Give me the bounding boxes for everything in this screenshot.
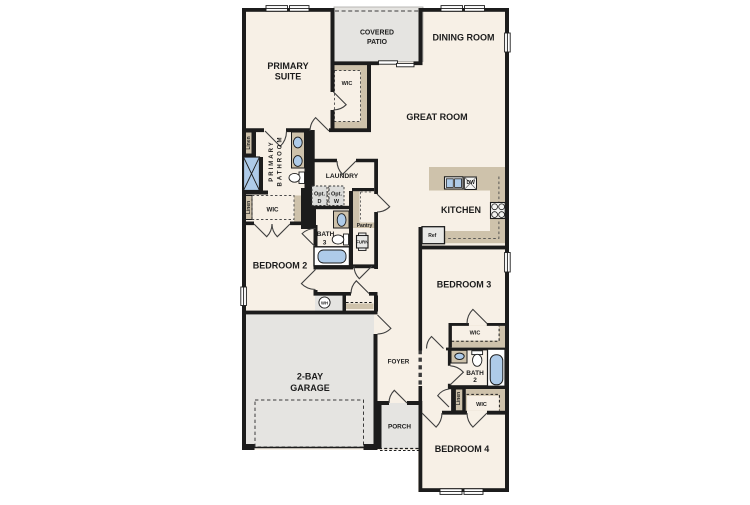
svg-text:SUITE: SUITE bbox=[275, 72, 302, 82]
svg-text:BATHROOM: BATHROOM bbox=[278, 136, 284, 187]
svg-text:D: D bbox=[318, 199, 322, 205]
svg-text:PORCH: PORCH bbox=[388, 424, 411, 431]
svg-text:BEDROOM 4: BEDROOM 4 bbox=[435, 444, 490, 454]
svg-text:DINING ROOM: DINING ROOM bbox=[433, 33, 495, 43]
svg-text:Linen: Linen bbox=[456, 392, 462, 405]
svg-text:FOYER: FOYER bbox=[388, 358, 410, 365]
svg-text:DW: DW bbox=[467, 180, 476, 186]
svg-text:Opt.: Opt. bbox=[331, 192, 342, 198]
svg-text:KITCHEN: KITCHEN bbox=[441, 205, 481, 215]
svg-text:BATH: BATH bbox=[466, 370, 484, 377]
svg-text:Linen: Linen bbox=[246, 136, 252, 149]
svg-text:PRIMARY: PRIMARY bbox=[267, 61, 308, 71]
svg-text:WIC: WIC bbox=[266, 207, 279, 214]
svg-text:COVERED: COVERED bbox=[360, 30, 394, 37]
svg-text:WH: WH bbox=[321, 300, 328, 305]
svg-text:2: 2 bbox=[473, 377, 477, 384]
svg-text:GARAGE: GARAGE bbox=[290, 383, 330, 393]
svg-text:3: 3 bbox=[323, 239, 327, 246]
svg-text:FURN: FURN bbox=[356, 240, 368, 245]
svg-text:2-BAY: 2-BAY bbox=[297, 372, 323, 382]
svg-text:Opt.: Opt. bbox=[314, 192, 325, 198]
svg-text:Pantry: Pantry bbox=[357, 223, 373, 229]
svg-text:BEDROOM 2: BEDROOM 2 bbox=[253, 261, 308, 271]
svg-text:GREAT ROOM: GREAT ROOM bbox=[406, 112, 467, 122]
svg-text:BATH: BATH bbox=[317, 231, 335, 238]
svg-text:Ref: Ref bbox=[428, 233, 436, 239]
svg-text:BEDROOM 3: BEDROOM 3 bbox=[437, 280, 492, 290]
svg-text:WIC: WIC bbox=[342, 81, 353, 87]
svg-text:WIC: WIC bbox=[470, 331, 481, 337]
svg-text:PATIO: PATIO bbox=[367, 39, 388, 46]
svg-text:W: W bbox=[334, 199, 340, 205]
svg-text:PRIMARY: PRIMARY bbox=[269, 140, 275, 181]
svg-text:WIC: WIC bbox=[476, 402, 487, 408]
svg-text:LAUNDRY: LAUNDRY bbox=[326, 173, 359, 180]
svg-text:Linen: Linen bbox=[246, 201, 252, 214]
